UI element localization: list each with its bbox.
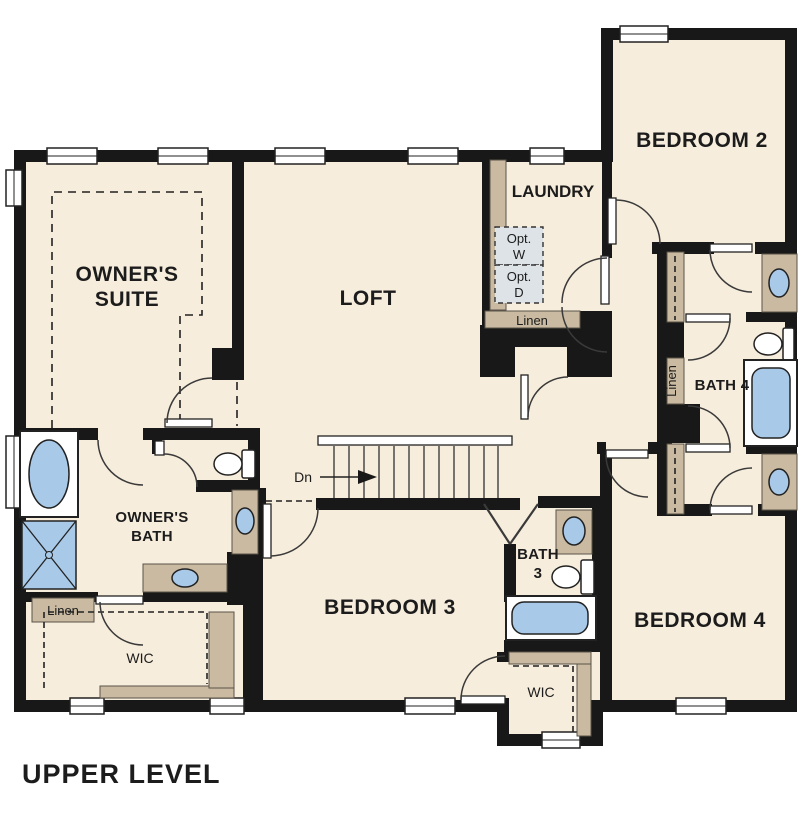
laundry-label: LAUNDRY [512, 182, 595, 201]
optional-washer-dryer: Opt. W Opt. D [495, 227, 543, 303]
owners-sink1-icon [236, 508, 254, 534]
wic-hall-label: WIC [527, 684, 554, 700]
bath4-label: BATH 4 [695, 377, 750, 394]
opt-washer-label: Opt. [507, 231, 532, 246]
owners-tub-icon [20, 431, 78, 517]
floor-plan: Opt. W Opt. D Dn [0, 0, 810, 810]
loft-label: LOFT [340, 287, 397, 310]
bath4-sink1-icon [769, 269, 789, 297]
owners-suite-label-1: OWNER'S [76, 263, 179, 286]
opt-dryer-letter: D [514, 285, 523, 300]
linen-hall-label: Linen [664, 365, 679, 397]
owners-suite-label-2: SUITE [95, 288, 159, 311]
floor-plan-page: Opt. W Opt. D Dn [0, 0, 810, 810]
wic-owners-label: WIC [126, 650, 153, 666]
bedroom3-label: BEDROOM 3 [324, 596, 456, 619]
bath4-tub-icon [744, 360, 797, 446]
owners-toilet-icon [214, 450, 255, 478]
owners-bath-label-1: OWNER'S [115, 509, 188, 526]
opt-dryer-label: Opt. [507, 269, 532, 284]
bath3-tub-icon [506, 596, 596, 640]
linen-laundry-label: Linen [516, 313, 548, 328]
stairs-down-label: Dn [294, 469, 312, 485]
page-title: UPPER LEVEL [22, 759, 221, 789]
bath3-label-2: 3 [534, 565, 543, 582]
linen-owners-label: Linen [47, 603, 79, 618]
opt-washer-letter: W [513, 247, 526, 262]
bedroom2-label: BEDROOM 2 [636, 129, 768, 152]
bath3-label-1: BATH [517, 546, 559, 563]
owners-bath-label-2: BATH [131, 528, 173, 545]
owners-shower-icon [22, 521, 76, 589]
bath3-sink-icon [563, 517, 585, 545]
owners-sink2-icon [172, 569, 198, 587]
bedroom4-label: BEDROOM 4 [634, 609, 766, 632]
bath4-sink2-icon [769, 469, 789, 495]
